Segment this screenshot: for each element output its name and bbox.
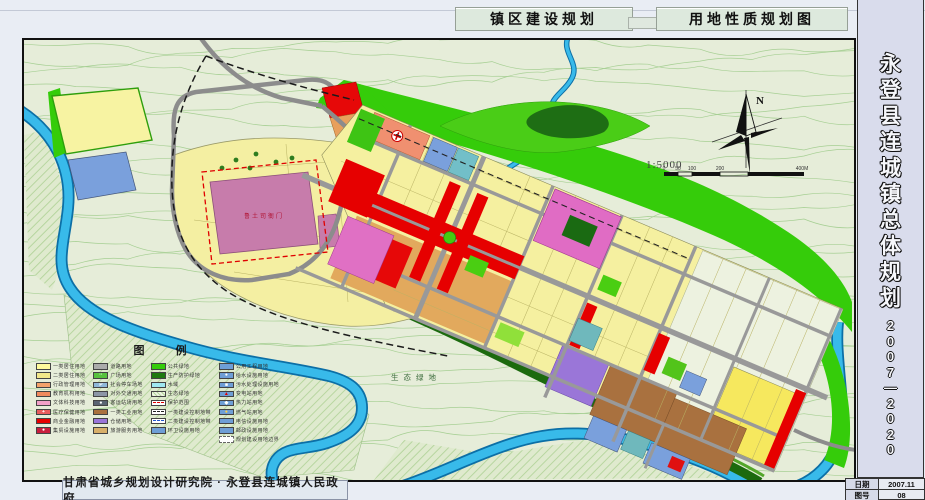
title-char: 镇	[880, 182, 901, 208]
legend-label: 商业金融用地	[53, 418, 85, 425]
legend-label: 文体科技用地	[53, 399, 85, 406]
legend-swatch: ··	[93, 372, 108, 379]
period-char: 0	[887, 334, 894, 350]
legend-swatch	[151, 363, 166, 370]
period-char: 2	[887, 427, 894, 443]
legend-label: 广场用地	[110, 372, 132, 379]
legend-item: 文体科技用地	[36, 399, 90, 406]
period-char: 0	[887, 411, 894, 427]
legend-swatch: ▲	[219, 391, 234, 398]
sheet-title-right-text: 用地性质规划图	[689, 9, 815, 29]
scale-tick: 50	[675, 166, 681, 172]
title-char: 体	[880, 234, 901, 260]
legend-swatch: ■	[219, 382, 234, 389]
legend-swatch	[151, 372, 166, 379]
legend-item: ●给水设施用地	[219, 372, 284, 379]
legend-swatch: ●	[219, 372, 234, 379]
legend-label: 一类居住用地	[53, 363, 85, 370]
sheet-info-table: 日期2007.11图号08	[845, 478, 925, 500]
legend-item: ■污水处理设施用地	[219, 381, 284, 388]
legend-swatch: ◆	[219, 400, 234, 407]
legend-item: ●客运站场用地	[93, 399, 147, 406]
legend-label: 燃气站用地	[236, 409, 263, 416]
legend-swatch	[219, 427, 234, 434]
legend-label: 教育机构用地	[53, 390, 85, 397]
title-char: 连	[880, 130, 901, 156]
legend-item: 一类建设控制地带	[151, 409, 216, 416]
legend-swatch	[219, 436, 234, 443]
legend-swatch	[93, 409, 108, 416]
legend-item: 水域	[151, 381, 216, 388]
legend-title: 图 例	[36, 342, 284, 358]
legend-label: 对外交通用地	[110, 390, 142, 397]
legend-item: 道路用地	[93, 363, 147, 370]
period-char: —	[884, 380, 897, 396]
legend-swatch	[219, 363, 234, 370]
scale-tick: 400M	[796, 166, 809, 172]
legend-swatch	[151, 400, 166, 407]
legend-columns: 一类居住用地二类居住用地行政管理用地教育机构用地文体科技用地+医疗保健用地商业金…	[36, 361, 284, 445]
legend-swatch	[36, 400, 51, 407]
legend-label: 仓储用地	[110, 418, 132, 425]
legend-swatch: ●	[219, 409, 234, 416]
legend-swatch	[93, 418, 108, 425]
legend-item: ▲变电站用地	[219, 390, 284, 397]
info-row: 图号08	[846, 490, 924, 500]
legend-item: 公用工程用地	[219, 363, 284, 370]
period-char: 7	[887, 365, 894, 381]
scale-tick: 200	[716, 166, 725, 172]
legend-swatch	[36, 382, 51, 389]
legend-item: 行政管理用地	[36, 381, 90, 388]
legend-swatch	[151, 427, 166, 434]
sheet-title-left: 镇区建设规划	[455, 7, 633, 31]
heritage-label: 鲁土司衙门	[244, 212, 284, 220]
legend-label: 一类建设控制地带	[168, 409, 211, 416]
legend-item: 公共绿地	[151, 363, 216, 370]
title-char: 规	[880, 260, 901, 286]
legend-label: 二类居住用地	[53, 372, 85, 379]
legend-label: 集贸设施用地	[53, 427, 85, 434]
legend-item: 二类居住用地	[36, 372, 90, 379]
title-char: 登	[880, 78, 901, 104]
legend-swatch	[93, 363, 108, 370]
legend-swatch	[151, 409, 166, 416]
legend-swatch	[151, 382, 166, 389]
legend-label: 旅游服务用地	[110, 427, 142, 434]
legend-swatch	[93, 427, 108, 434]
legend-swatch: +	[36, 409, 51, 416]
legend-swatch: ●	[93, 400, 108, 407]
legend-item: 旅游服务用地	[93, 427, 147, 434]
legend-item: 一类居住用地	[36, 363, 90, 370]
legend-item: 生产防护绿地	[151, 372, 216, 379]
title-block-panel: 永登县连城镇总体规划 2007—2020	[857, 0, 924, 478]
credit-box: 甘肃省城乡规划设计研究院 · 永登县连城镇人民政府	[62, 480, 348, 500]
period-char: 0	[887, 442, 894, 458]
legend-label: 客运站场用地	[110, 399, 142, 406]
legend-swatch	[151, 418, 166, 425]
legend-swatch	[36, 372, 51, 379]
legend-label: 水域	[168, 381, 179, 388]
scale-tick: 100	[688, 166, 697, 172]
north-label: N	[756, 95, 764, 107]
legend-label: 邮政设施用地	[236, 427, 268, 434]
plan-period-vertical: 2007—2020	[858, 318, 923, 458]
legend-label: 公用工程用地	[236, 363, 268, 370]
legend-label: 生态绿地	[168, 390, 190, 397]
legend-item: +医疗保健用地	[36, 409, 90, 416]
legend-swatch	[93, 391, 108, 398]
eco-green-label: 生态绿地	[391, 372, 441, 382]
legend-label: 规划建设用地边界	[236, 436, 279, 443]
legend-label: 公共绿地	[168, 363, 190, 370]
legend-label: 道路用地	[110, 363, 132, 370]
legend-item: ●燃气站用地	[219, 409, 284, 416]
legend-swatch: P	[93, 382, 108, 389]
scale-tick: 0	[663, 166, 666, 172]
legend-item: 环卫设施用地	[151, 427, 216, 434]
period-char: 2	[887, 396, 894, 412]
legend-item: 规划建设用地边界	[219, 436, 284, 443]
legend-swatch	[36, 363, 51, 370]
title-char: 城	[880, 156, 901, 182]
title-char: 县	[880, 104, 901, 130]
legend-label: 热力站用地	[236, 399, 263, 406]
sheet-title-left-text: 镇区建设规划	[490, 9, 598, 29]
legend-label: 二类建设控制地带	[168, 418, 211, 425]
heritage-block	[210, 172, 318, 254]
legend-label: 环卫设施用地	[168, 427, 200, 434]
legend-item: 仓储用地	[93, 418, 147, 425]
legend-item: 生态绿地	[151, 390, 216, 397]
credit-text: 甘肃省城乡规划设计研究院 · 永登县连城镇人民政府	[63, 474, 347, 500]
legend-item: 一类工业用地	[93, 409, 147, 416]
legend-item: ··广场用地	[93, 372, 147, 379]
title-char: 永	[880, 52, 901, 78]
legend-swatch	[36, 391, 51, 398]
legend-item: 二类建设控制地带	[151, 418, 216, 425]
legend-swatch	[151, 391, 166, 398]
legend-item: ◆热力站用地	[219, 399, 284, 406]
legend-label: 生产防护绿地	[168, 372, 200, 379]
legend-label: 医疗保健用地	[53, 409, 85, 416]
map-canvas: 鲁土司衙门 生态绿地 N 1:5000 0	[22, 38, 856, 482]
legend-swatch: ●	[36, 427, 51, 434]
legend-label: 一类工业用地	[110, 409, 142, 416]
period-char: 2	[887, 318, 894, 334]
legend-label: 给水设施用地	[236, 372, 268, 379]
legend-label: 电信设施用地	[236, 418, 268, 425]
drawing-title-vertical: 永登县连城镇总体规划	[858, 52, 923, 312]
legend-label: 社会停车场地	[110, 381, 142, 388]
period-char: 0	[887, 349, 894, 365]
legend-label: 行政管理用地	[53, 381, 85, 388]
legend-item: 教育机构用地	[36, 390, 90, 397]
legend-label: 污水处理设施用地	[236, 381, 279, 388]
legend-label: 变电站用地	[236, 390, 263, 397]
legend-item: 邮政设施用地	[219, 427, 284, 434]
sheet-title-right: 用地性质规划图	[656, 7, 848, 31]
title-char: 总	[880, 208, 901, 234]
legend-item: ●集贸设施用地	[36, 427, 90, 434]
legend-item: 商业金融用地	[36, 418, 90, 425]
legend-item: 对外交通用地	[93, 390, 147, 397]
legend-item: P社会停车场地	[93, 381, 147, 388]
info-row: 日期2007.11	[846, 479, 924, 490]
legend-label: 保护范围	[168, 399, 190, 406]
legend-item: 电信设施用地	[219, 418, 284, 425]
title-char: 划	[880, 286, 901, 312]
legend-item: 保护范围	[151, 399, 216, 406]
plan-sheet: 镇区建设规划 用地性质规划图	[0, 0, 925, 500]
map-legend: 图 例 一类居住用地二类居住用地行政管理用地教育机构用地文体科技用地+医疗保健用…	[36, 342, 284, 472]
legend-swatch	[219, 418, 234, 425]
legend-swatch	[36, 418, 51, 425]
